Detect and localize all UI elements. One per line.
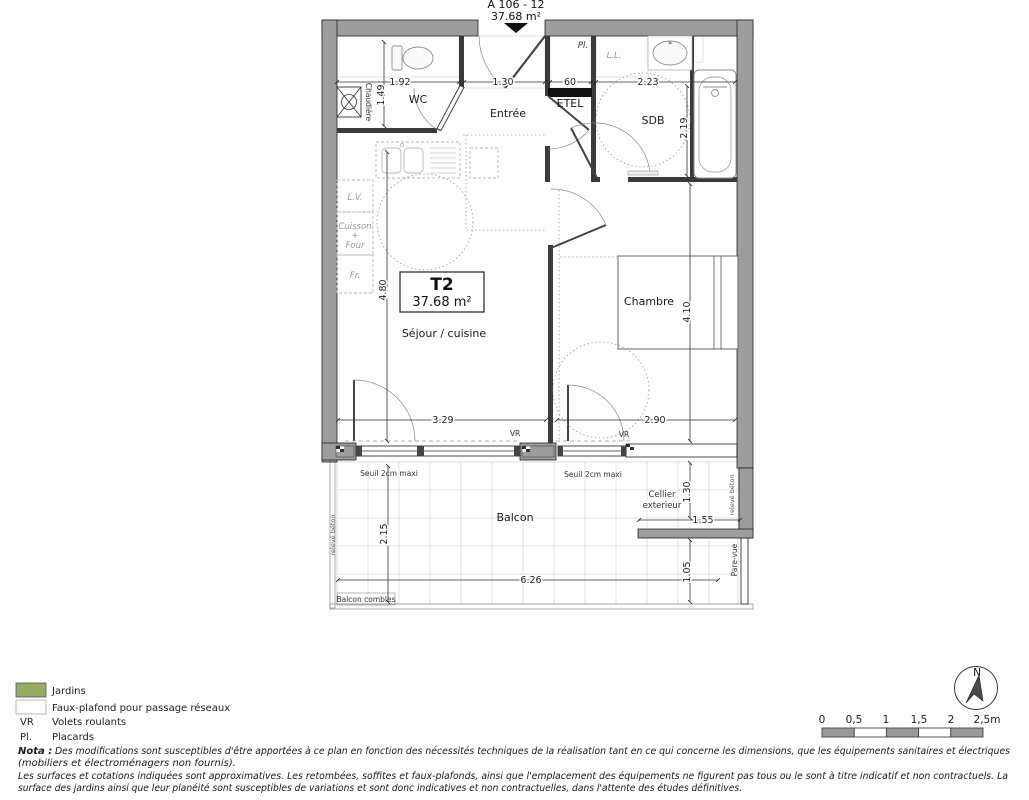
legend-jardins: Jardins xyxy=(51,686,86,697)
nota-line3: Les surfaces et cotations indiquées sont… xyxy=(18,770,1008,782)
room-label-cellier-2: exterieur xyxy=(643,501,682,511)
sejour-bay-window xyxy=(356,446,520,456)
releve-beton-right: relevé béton xyxy=(728,474,736,515)
dim-sdb-width: 2.23 xyxy=(637,77,658,88)
label-plus: + xyxy=(351,231,358,241)
scale-tick-15: 1,5 xyxy=(911,714,928,726)
wall-right xyxy=(737,20,753,468)
legend-vr-label: Volets roulants xyxy=(52,717,126,728)
vr-sejour: VR xyxy=(510,429,520,438)
interior-partitions xyxy=(337,36,737,443)
nota-block: Nota : Des modifications sont susceptibl… xyxy=(18,745,1010,794)
svg-text:Nota : Des modifications: Nota : Des modifications sont susceptibl… xyxy=(18,745,1010,757)
scale-tick-25: 2,5m xyxy=(974,714,1001,726)
floor-plan-drawing: A 106 - 12 37.68 m² xyxy=(0,0,1029,800)
bath-mat xyxy=(628,171,658,175)
nota-lead: Nota : xyxy=(18,746,52,757)
type-box: T2 37.68 m² xyxy=(400,272,484,312)
entrance-pointer-icon xyxy=(504,23,528,33)
kitchen-sink-icon xyxy=(376,142,498,178)
scale-tick-2: 2 xyxy=(948,714,955,726)
label-ll: L.L. xyxy=(607,51,622,61)
dim-sdb-height: 2.19 xyxy=(679,117,690,138)
pare-vue-label: Pare-vue xyxy=(730,543,739,576)
wc-door-leaf xyxy=(437,86,464,131)
scale-tick-1: 1 xyxy=(883,714,890,726)
dim-sejour-width: 3.29 xyxy=(432,415,453,426)
legend-pl-label: Placards xyxy=(52,732,94,743)
etel-door-swing xyxy=(548,130,589,149)
faux-plafond-swatch xyxy=(16,700,46,714)
wall-cellier-south xyxy=(638,529,753,538)
label-chaudiere: Chaudière xyxy=(364,83,373,122)
type-area: 37.68 m² xyxy=(412,295,471,310)
dim-wc-height: 1.49 xyxy=(376,84,387,105)
scale-bar: 0 0,5 1 1,5 2 2,5m xyxy=(819,714,1001,737)
label-pl: Pl. xyxy=(578,41,588,51)
wall-top-right xyxy=(545,20,753,36)
room-label-sejour: Séjour / cuisine xyxy=(402,327,487,340)
legend-vr-abbr: VR xyxy=(20,717,34,728)
legend: Jardins Faux-plafond pour passage réseau… xyxy=(16,683,230,743)
pare-vue-screen xyxy=(741,538,748,604)
label-four: Four xyxy=(346,241,365,251)
wall-top-left xyxy=(322,20,478,36)
label-lv: L.V. xyxy=(348,193,363,203)
releve-beton-left: relevé béton xyxy=(329,514,337,555)
balcon-combles: Balcon combles xyxy=(336,595,395,604)
room-label-sdb: SDB xyxy=(642,114,665,127)
room-label-etel: ETEL xyxy=(557,97,585,110)
jardins-swatch xyxy=(16,683,46,697)
plan-title: A 106 - 12 37.68 m² xyxy=(488,0,545,33)
nota-line1: Des modifications sont susceptibles d'êt… xyxy=(55,745,1010,757)
north-label: N xyxy=(973,667,981,679)
dim-chambre-width: 2.90 xyxy=(644,415,665,426)
wall-left xyxy=(322,20,337,462)
legend-faux-plafond: Faux-plafond pour passage réseaux xyxy=(52,702,230,714)
type-label: T2 xyxy=(430,275,453,295)
nota-line2: (mobiliers et électroménagers non fourni… xyxy=(18,757,236,769)
dim-balcon-width: 6.26 xyxy=(520,575,541,586)
unit-area: 37.68 m² xyxy=(491,10,541,23)
scale-tick-0: 0 xyxy=(819,714,826,726)
chambre-window xyxy=(558,446,626,456)
floor-plan-page: A 106 - 12 37.68 m² xyxy=(0,0,1029,800)
label-fr: Fr. xyxy=(350,271,360,281)
dim-cellier-width: 1.55 xyxy=(692,515,713,526)
room-label-cellier-1: Cellier xyxy=(649,490,676,500)
legend-pl-abbr: Pl. xyxy=(20,732,32,743)
seuil-left: Seuil 2cm maxi xyxy=(360,469,418,478)
seuil-right: Seuil 2cm maxi xyxy=(564,470,622,479)
room-label-wc: WC xyxy=(409,93,428,106)
washbasin-icon xyxy=(648,36,692,70)
bathtub-icon xyxy=(694,70,736,178)
room-label-chambre: Chambre xyxy=(624,295,674,308)
dim-cellier-height: 1.30 xyxy=(682,481,693,502)
scale-tick-05: 0,5 xyxy=(846,714,863,726)
toilet-icon xyxy=(392,46,433,70)
chambre-door-leaf xyxy=(551,225,606,248)
dim-parevue-height: 1.05 xyxy=(682,561,693,582)
dim-etel-width: 60 xyxy=(564,77,576,88)
room-label-balcon: Balcon xyxy=(496,511,533,524)
sdb-door-swing xyxy=(571,123,650,172)
dim-balcon-height: 2.15 xyxy=(379,523,390,544)
nota-line4: surface des jardins ainsi que leur plané… xyxy=(18,782,742,794)
dim-chambre-height: 4.10 xyxy=(682,301,693,322)
north-arrow: N xyxy=(955,667,998,710)
north-needle-icon xyxy=(966,675,983,703)
chambre-balcony-door-swing xyxy=(568,385,624,441)
dim-entree-width: 1.30 xyxy=(492,77,513,88)
windows xyxy=(345,441,630,456)
wall-chambre-south xyxy=(626,444,737,457)
dim-wc-width: 1.92 xyxy=(389,77,410,88)
etel-cabinet xyxy=(548,88,592,97)
boiler-icon xyxy=(337,87,361,117)
vr-chambre: VR xyxy=(619,430,629,439)
doors xyxy=(354,36,650,441)
room-label-entree: Entrée xyxy=(490,107,526,120)
wall-cellier-east xyxy=(739,468,753,538)
sejour-balcony-door-swing xyxy=(354,380,415,441)
dim-sejour-height: 4.80 xyxy=(378,279,389,300)
